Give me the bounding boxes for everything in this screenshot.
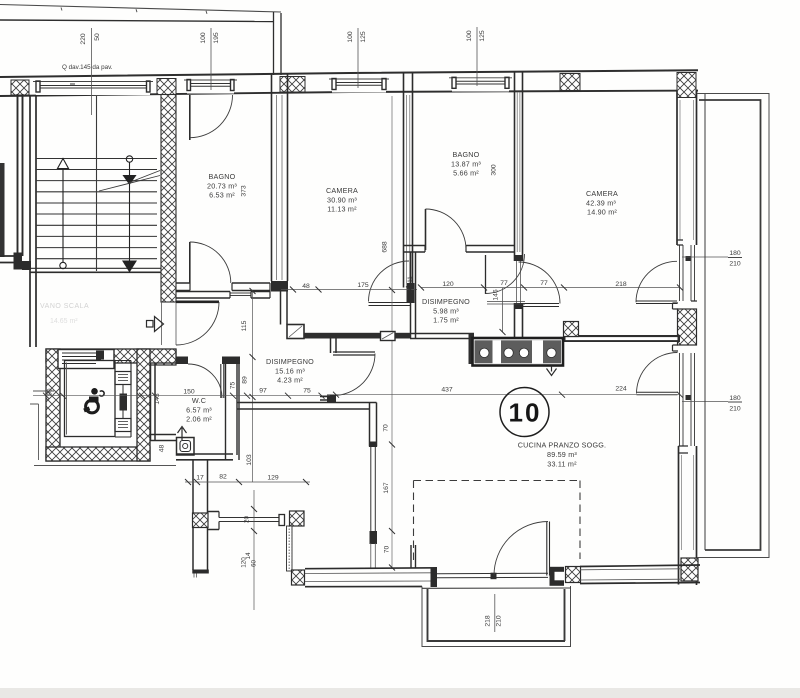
svg-text:33.11 m²: 33.11 m² [547,460,577,469]
svg-text:218: 218 [615,281,627,288]
svg-text:146: 146 [493,289,500,301]
svg-text:77: 77 [540,280,548,287]
svg-text:210: 210 [729,406,741,413]
svg-text:14.90 m²: 14.90 m² [587,208,617,217]
svg-text:10: 10 [509,398,542,428]
svg-text:75: 75 [303,388,311,395]
svg-text:5.98 m³: 5.98 m³ [433,307,459,316]
svg-text:77: 77 [500,280,508,287]
svg-text:VANO SCALA: VANO SCALA [40,303,89,310]
svg-text:143: 143 [154,393,161,405]
svg-text:688: 688 [382,241,389,253]
svg-text:103: 103 [246,454,253,466]
svg-text:14.65 m²: 14.65 m² [50,318,78,325]
svg-text:14: 14 [245,552,252,560]
svg-text:97: 97 [259,388,267,395]
svg-text:437: 437 [441,387,453,394]
svg-text:100: 100 [200,32,207,44]
svg-text:75: 75 [230,382,237,390]
svg-text:100: 100 [347,31,354,43]
svg-text:48: 48 [302,283,310,290]
svg-text:218: 218 [485,615,492,627]
svg-text:195: 195 [213,32,220,44]
svg-text:125: 125 [360,31,367,43]
svg-text:60: 60 [251,560,258,568]
svg-text:4.23 m²: 4.23 m² [277,376,303,385]
svg-text:50: 50 [94,33,101,41]
svg-text:CAMERA: CAMERA [586,189,618,198]
svg-text:70: 70 [384,546,391,554]
svg-text:20: 20 [244,516,251,524]
svg-text:CAMERA: CAMERA [326,186,358,195]
svg-text:DISIMPEGNO: DISIMPEGNO [422,297,470,306]
svg-text:82: 82 [219,474,227,481]
svg-text:100: 100 [466,30,473,42]
svg-text:20.73 m³: 20.73 m³ [207,182,237,191]
svg-text:W.C: W.C [192,396,206,405]
svg-text:115: 115 [241,320,248,331]
svg-text:89: 89 [242,376,249,384]
svg-text:180: 180 [729,395,741,402]
svg-text:CUCINA PRANZO SOGG.: CUCINA PRANZO SOGG. [518,441,606,450]
svg-text:48: 48 [159,445,166,453]
svg-text:120: 120 [442,281,454,288]
svg-text:175: 175 [357,282,369,289]
svg-text:1.75 m²: 1.75 m² [433,316,459,325]
svg-text:17: 17 [196,475,204,482]
svg-text:Q dav.145 da pav.: Q dav.145 da pav. [62,64,113,71]
svg-text:5.66 m²: 5.66 m² [453,169,479,178]
svg-text:13.87 m³: 13.87 m³ [451,160,481,169]
svg-text:BAGNO: BAGNO [209,172,236,181]
svg-text:42.39 m³: 42.39 m³ [586,199,616,208]
svg-text:30.90 m³: 30.90 m³ [327,196,357,205]
svg-text:6.57 m³: 6.57 m³ [186,406,212,415]
svg-text:220: 220 [80,33,87,45]
svg-text:210: 210 [496,615,503,627]
svg-text:6.53 m²: 6.53 m² [209,191,235,200]
svg-text:210: 210 [729,261,741,268]
svg-text:125: 125 [479,30,486,42]
svg-text:11.13 m²: 11.13 m² [327,205,357,214]
svg-text:180: 180 [729,250,741,257]
svg-text:2.06 m²: 2.06 m² [186,415,212,424]
svg-text:DISIMPEGNO: DISIMPEGNO [266,357,314,366]
svg-text:224: 224 [615,386,627,393]
svg-text:15.16 m³: 15.16 m³ [275,367,305,376]
svg-text:BAGNO: BAGNO [453,150,480,159]
svg-text:89.59 m³: 89.59 m³ [547,450,577,459]
svg-text:373: 373 [241,185,248,197]
svg-text:90: 90 [47,388,54,396]
svg-text:300: 300 [491,164,498,176]
svg-text:70: 70 [383,424,390,432]
svg-text:150: 150 [183,389,195,396]
svg-text:167: 167 [383,482,390,494]
svg-text:129: 129 [267,475,279,482]
